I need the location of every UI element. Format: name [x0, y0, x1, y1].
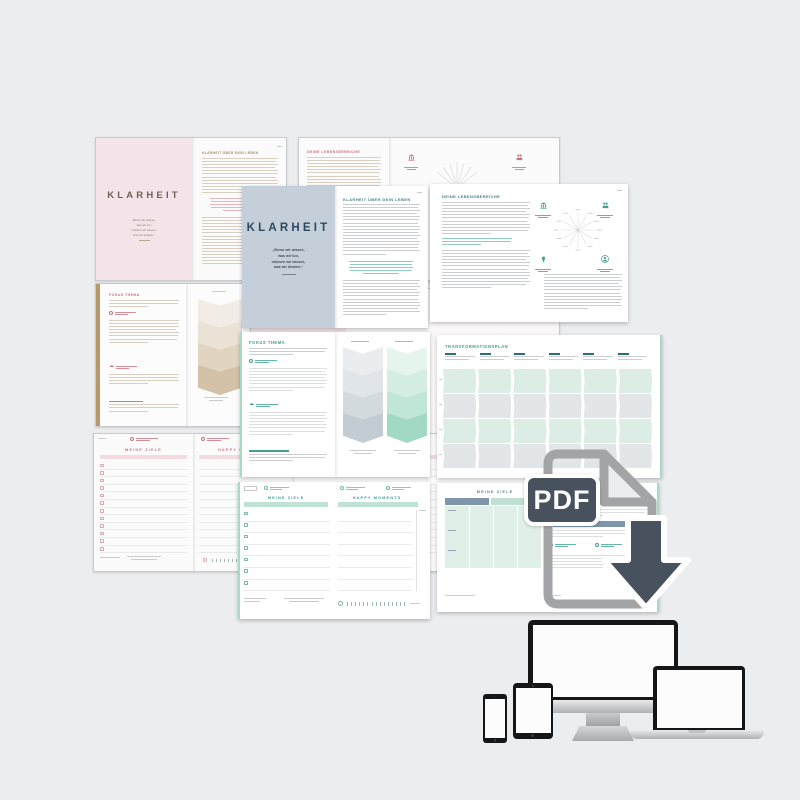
- row-number: [439, 429, 442, 430]
- goal-rows: [244, 510, 330, 591]
- cover-quote-back: „Bevor wir wissen, was wir tun, müssen w…: [104, 218, 184, 241]
- bottom-note: [249, 450, 327, 463]
- link-placeholder: [442, 238, 512, 247]
- goal-rows: [100, 462, 187, 553]
- life-areas-wheel-diagram: [550, 206, 606, 254]
- icon-label-placeholder: [136, 437, 162, 443]
- page-lebensbereiche-front: DEINE LEBENSBEREICHE: [430, 184, 628, 322]
- heading-transformationsplan: TRANSFORMATIONSPLAN: [445, 344, 508, 349]
- page-fokus-text-back: FOKUS THEMA ☁: [100, 284, 186, 426]
- text-placeholder: [249, 348, 327, 357]
- margin-rule: [416, 510, 417, 591]
- cloud-icon: ☁: [109, 364, 114, 369]
- footer-placeholder: [100, 557, 120, 558]
- title-band: [338, 502, 418, 507]
- page-klarheit-text-front: KLARHEIT ÜBER DEIN LEBEN: [335, 186, 428, 328]
- mint-edge: [238, 482, 240, 619]
- row-label-placeholder: [448, 550, 456, 551]
- page-pink-cover: KLARHEIT „Bevor wir wissen, was wir tun,…: [96, 138, 192, 280]
- ring-icon: [249, 359, 253, 363]
- bottom-note: [109, 401, 179, 414]
- icon-label-placeholder: [115, 311, 139, 317]
- plan-column-headers: [445, 353, 650, 362]
- monitor-stand-neck: [586, 713, 620, 726]
- page-fokus-chevrons-front: [335, 332, 430, 477]
- quote-attribution: [139, 240, 150, 241]
- row-label-placeholder: [448, 530, 456, 531]
- chevron-stack-bluegray: [343, 347, 383, 443]
- laptop-screen: [657, 670, 742, 729]
- heading-klarheit-ueber-back: KLARHEIT ÜBER DEIN LEBEN: [202, 151, 258, 155]
- tablet-camera: [532, 685, 534, 687]
- text-placeholder: [442, 250, 530, 290]
- cover-title-back: KLARHEIT: [96, 190, 192, 201]
- table-divider: [469, 506, 470, 568]
- icon-label-placeholder: [596, 269, 614, 272]
- table-header-blue: [445, 498, 489, 505]
- phone-screen: [485, 699, 505, 739]
- page-ziele-back-left: MEINE ZIELE: [94, 434, 193, 571]
- margin-icon-row: [264, 486, 292, 492]
- page-number: [277, 146, 282, 147]
- heading-fokus-front: FOKUS THEMA: [249, 340, 285, 345]
- page-blue-cover: KLARHEIT „Bevor wir wissen, was wir tun,…: [242, 186, 335, 328]
- chevron-stack-mint: [387, 347, 427, 443]
- heading-lebensbereiche-back: DEINE LEBENSBEREICHE: [307, 150, 360, 154]
- column-label-placeholder: [351, 341, 369, 342]
- tablet-home-button: [531, 734, 534, 737]
- heading-fokus-back: FOKUS THEMA: [109, 293, 140, 297]
- moment-rows: [338, 510, 412, 591]
- monitor-stand-base: [572, 726, 634, 741]
- rose-icon-row: [201, 437, 233, 443]
- text-placeholder: [249, 454, 327, 461]
- page-number: [617, 190, 622, 191]
- icon-label-placeholder: [534, 269, 552, 272]
- column-label-placeholder: [395, 341, 413, 342]
- icon-label-placeholder: [403, 167, 419, 170]
- column-footer-placeholder: [389, 450, 425, 454]
- laptop-mockup: [630, 666, 764, 739]
- mini-heading-placeholder: [249, 450, 289, 452]
- row-number: [439, 454, 442, 455]
- icon-label-placeholder: [392, 486, 414, 492]
- institution-icon: [403, 148, 419, 172]
- community-icon: [511, 148, 527, 172]
- tick-row: [347, 602, 408, 606]
- text-placeholder: [544, 274, 622, 311]
- heading-happy-front: HAPPY MOMENTS: [334, 495, 420, 500]
- text-placeholder: [442, 202, 530, 236]
- spread-ziele-happy-front: MEINE ZIELE HAPPY MOMENTS: [238, 482, 430, 619]
- icon-label-placeholder: [255, 359, 281, 365]
- quote-attribution: [282, 274, 296, 275]
- column-footer-placeholder: [204, 397, 228, 401]
- icon-label-placeholder: [207, 437, 233, 443]
- ring-icon: [130, 437, 134, 441]
- rose-icon-row: [130, 437, 162, 443]
- ring-icon: [109, 311, 113, 315]
- ring-icon: [264, 486, 268, 490]
- download-arrow-icon: [600, 514, 692, 614]
- footer-placeholder: [445, 595, 475, 596]
- column-footer-placeholder: [345, 450, 381, 454]
- margin-icon-row: [386, 486, 414, 492]
- pdf-download-graphic: PDF: [524, 446, 694, 616]
- cover-title-front: KLARHEIT: [242, 222, 335, 234]
- row-number: [439, 404, 442, 405]
- date-box: [244, 486, 257, 491]
- quote-placeholder: [349, 261, 413, 276]
- ruled-lines: [249, 368, 327, 393]
- icon-label-placeholder: [270, 486, 292, 492]
- footer-center-placeholder: [282, 598, 326, 602]
- laptop-screen-frame: [653, 666, 745, 730]
- margin-note-placeholder: [419, 510, 426, 511]
- ring-icon: [203, 558, 207, 562]
- margin-icon-row: [340, 486, 368, 492]
- page-number: [417, 192, 422, 193]
- pdf-label: PDF: [534, 485, 591, 516]
- footer-placeholder: [410, 603, 420, 604]
- row-label-placeholder: [448, 510, 456, 511]
- phone-camera: [494, 696, 495, 697]
- tablet-screen: [516, 688, 551, 733]
- heading-ziele-back: MEINE ZIELE: [94, 448, 193, 452]
- focus-ring-icon-row: [109, 311, 139, 317]
- title-band: [100, 455, 187, 459]
- ruled-lines: [249, 412, 327, 437]
- text-placeholder: [109, 300, 179, 309]
- spread-klarheit-cover-front: KLARHEIT „Bevor wir wissen, was wir tun,…: [242, 186, 428, 328]
- laptop-base: [630, 730, 764, 739]
- text-placeholder: [343, 280, 420, 317]
- ring-icon: [386, 486, 390, 490]
- table-divider: [493, 506, 494, 568]
- pdf-badge: PDF: [524, 474, 600, 526]
- ring-icon: [201, 437, 205, 441]
- margin-mark: [98, 438, 106, 439]
- table-divider: [517, 506, 518, 568]
- cloud-icon-row: ☁: [109, 364, 140, 371]
- cloud-icon: ☁: [249, 402, 254, 407]
- icon-label-placeholder: [116, 365, 140, 371]
- cloud-icon-row: ☁: [249, 402, 282, 409]
- tracker-ring-icon: [338, 601, 343, 606]
- icon-label-placeholder: [511, 167, 527, 170]
- ring-icon: [340, 486, 344, 490]
- heading-lebensbereiche-front: DEINE LEBENSBEREICHE: [442, 194, 500, 199]
- page-fokus-text-front: FOKUS THEMA ☁: [242, 332, 335, 477]
- klarheit-pdf-product-image: KLARHEIT „Bevor wir wissen, was wir tun,…: [0, 0, 800, 800]
- laptop-notch: [688, 730, 706, 733]
- row-number: [439, 379, 442, 380]
- heading-ziele-front: MEINE ZIELE: [240, 495, 332, 500]
- tablet-mockup: [513, 683, 553, 739]
- footer-center-placeholder: [124, 556, 164, 560]
- mini-heading-placeholder: [109, 401, 143, 402]
- heading-klarheit-ueber-front: KLARHEIT ÜBER DEIN LEBEN: [343, 197, 411, 202]
- icon-label-placeholder: [346, 486, 368, 492]
- focus-ring-icon-row: [249, 359, 281, 365]
- icon-label-placeholder: [256, 403, 282, 409]
- text-placeholder: [109, 320, 179, 345]
- text-placeholder: [343, 204, 420, 257]
- phone-mockup: [483, 694, 507, 743]
- chevron-stack-beige: [198, 299, 242, 395]
- text-placeholder: [109, 404, 179, 411]
- phone-home-button: [494, 739, 497, 742]
- spread-fokus-thema-front: FOKUS THEMA ☁: [240, 332, 430, 477]
- title-band: [244, 502, 328, 507]
- cover-quote-front: „Bevor wir wissen, was wir tun, müssen w…: [250, 248, 327, 275]
- text-placeholder: [109, 374, 179, 386]
- column-label-placeholder: [212, 291, 226, 292]
- footer-placeholder: [244, 598, 266, 602]
